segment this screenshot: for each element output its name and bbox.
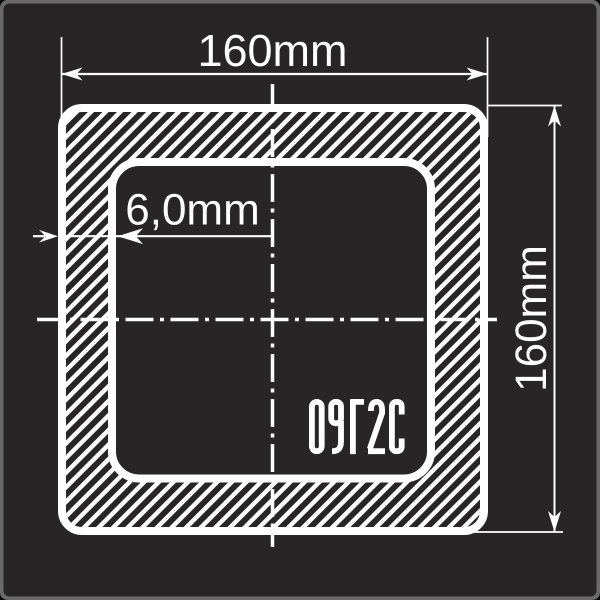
svg-text:6,0mm: 6,0mm <box>125 185 259 234</box>
svg-text:160mm: 160mm <box>507 245 556 392</box>
svg-text:160mm: 160mm <box>197 25 347 76</box>
